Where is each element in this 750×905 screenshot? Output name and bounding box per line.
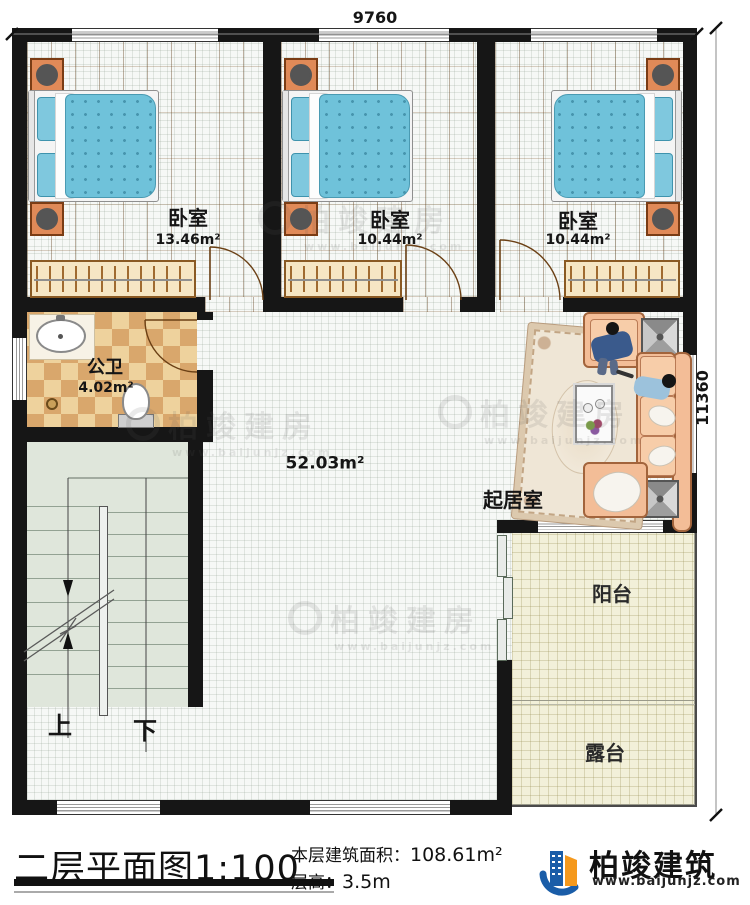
- faucet-icon: [56, 315, 65, 321]
- dimension-top: 9760: [348, 10, 403, 26]
- bedroom3-threshold: [500, 297, 563, 312]
- watermark-logo-icon: [438, 395, 472, 429]
- balcony-terrace: [512, 533, 697, 807]
- stairs-up-label: 上: [48, 714, 72, 738]
- watermark: 柏竣建房 www.baijunjz.com: [288, 596, 494, 653]
- watermark-text: 柏竣建房: [480, 390, 632, 434]
- armchair-bottom: [583, 462, 648, 518]
- hall-area: 52.03m²: [286, 456, 365, 473]
- wall-bed1-bed2: [263, 42, 281, 312]
- wall-bedrooms-hall-a: [27, 297, 205, 312]
- bedroom1-threshold: [205, 297, 263, 312]
- nightstand: [30, 202, 64, 236]
- floor-plan-page: { "dimensions": { "top": "9760", "right"…: [0, 0, 750, 905]
- floor-drain-icon: [46, 398, 58, 410]
- wall-left: [12, 28, 27, 815]
- wall-bedrooms-hall-c: [460, 297, 477, 312]
- lamp-icon: [290, 64, 312, 86]
- bedroom1-label: 卧室: [168, 208, 208, 228]
- bed-headboard: [675, 91, 681, 201]
- window-bedroom2: [319, 28, 449, 42]
- company-website: www.baijunjz.com: [592, 874, 741, 889]
- wall-bed2-bed3: [477, 42, 495, 312]
- watermark-logo-icon: [126, 407, 160, 441]
- bedroom3-label: 卧室: [558, 211, 598, 231]
- watermark-url: www.baijunjz.com: [484, 434, 644, 447]
- living-room-label: 起居室: [483, 490, 543, 510]
- floor-area-label: 本层建筑面积：: [291, 846, 410, 866]
- wall-bedrooms-hall-d: [563, 297, 697, 312]
- watermark: 柏竣建房 www.baijunjz.com: [438, 390, 644, 447]
- sliding-door-panel: [497, 535, 507, 577]
- title-underline-thin: [14, 891, 334, 893]
- watermark-logo-icon: [258, 201, 292, 235]
- floor-height-row: 层高：3.5m: [291, 868, 391, 893]
- bedroom2-threshold: [403, 297, 460, 312]
- person-head: [662, 374, 676, 388]
- watermark-logo-icon: [288, 601, 322, 635]
- lamp-icon: [652, 64, 674, 86]
- wardrobe-bedroom1: [30, 260, 196, 298]
- floor-area-row: 本层建筑面积：108.61m²: [291, 841, 503, 866]
- stair-center-rail: [99, 506, 108, 716]
- stair-steps-left: [27, 506, 100, 698]
- bed-bedroom1: [28, 90, 159, 202]
- nightstand: [646, 58, 680, 92]
- wardrobe-bedroom3: [564, 260, 680, 298]
- bed-headboard: [29, 91, 35, 201]
- bedroom1-area: 13.46m²: [155, 233, 220, 247]
- company-logo-icon: [534, 842, 586, 898]
- bedroom3-area: 10.44m²: [545, 233, 610, 247]
- table-center: [657, 496, 664, 503]
- lamp-icon: [36, 64, 58, 86]
- wall-living-balcony-a: [497, 520, 538, 533]
- person-head: [606, 322, 619, 335]
- balcony-terrace-divider: [512, 700, 695, 701]
- nightstand: [30, 58, 64, 92]
- sink-drain: [58, 334, 63, 339]
- watermark: 柏竣建房 www.baijunjz.com: [126, 402, 332, 459]
- floor-height-label: 层高：: [291, 873, 342, 893]
- wall-terrace-left: [497, 660, 512, 815]
- sliding-door-panel: [497, 619, 507, 661]
- wardrobe-bedroom2: [284, 260, 402, 298]
- bathroom-label: 公卫: [87, 359, 123, 377]
- terrace-label: 露台: [585, 743, 625, 763]
- dimension-right: 11360: [695, 365, 711, 431]
- bathroom-area: 4.02m²: [78, 381, 133, 395]
- stairs-down-label: 下: [133, 719, 157, 743]
- table-center: [657, 334, 664, 341]
- end-table-top: [641, 318, 679, 356]
- wardrobe-rail: [288, 279, 398, 281]
- chair-blanket: [589, 467, 644, 516]
- nightstand: [646, 202, 680, 236]
- bed-bedroom2: [282, 90, 413, 202]
- balcony-label: 阳台: [592, 584, 632, 604]
- window-bottom-left: [57, 800, 160, 815]
- wall-bathroom-stub: [197, 312, 213, 320]
- floor-area-value: 108.61m²: [410, 844, 503, 866]
- window-bedroom3: [531, 28, 657, 42]
- wall-bedrooms-hall-b: [281, 297, 403, 312]
- nightstand: [284, 58, 318, 92]
- bed-quilt: [319, 94, 410, 198]
- watermark-text: 柏竣建房: [168, 402, 320, 446]
- watermark-url: www.baijunjz.com: [334, 640, 494, 653]
- bed-headboard: [283, 91, 289, 201]
- title-underline-thick: [14, 879, 334, 886]
- window-bedroom1: [72, 28, 218, 42]
- bed-bedroom3: [551, 90, 682, 202]
- watermark-text: 柏竣建房: [330, 596, 482, 640]
- sliding-door-panel: [503, 577, 513, 619]
- wall-stair-right: [188, 442, 203, 707]
- lamp-icon: [36, 208, 58, 230]
- stair-steps-right: [108, 512, 188, 707]
- balcony-terrace-divider2: [512, 704, 695, 705]
- bedroom2-label: 卧室: [370, 210, 410, 230]
- bedroom2-area: 10.44m²: [357, 233, 422, 247]
- wardrobe-rail: [34, 279, 192, 281]
- bed-quilt: [554, 94, 645, 198]
- bed-quilt: [65, 94, 156, 198]
- lamp-icon: [652, 208, 674, 230]
- wardrobe-rail: [568, 279, 676, 281]
- window-bathroom: [12, 338, 27, 400]
- window-bottom-mid: [310, 800, 450, 815]
- floor-height-value: 3.5m: [342, 871, 391, 893]
